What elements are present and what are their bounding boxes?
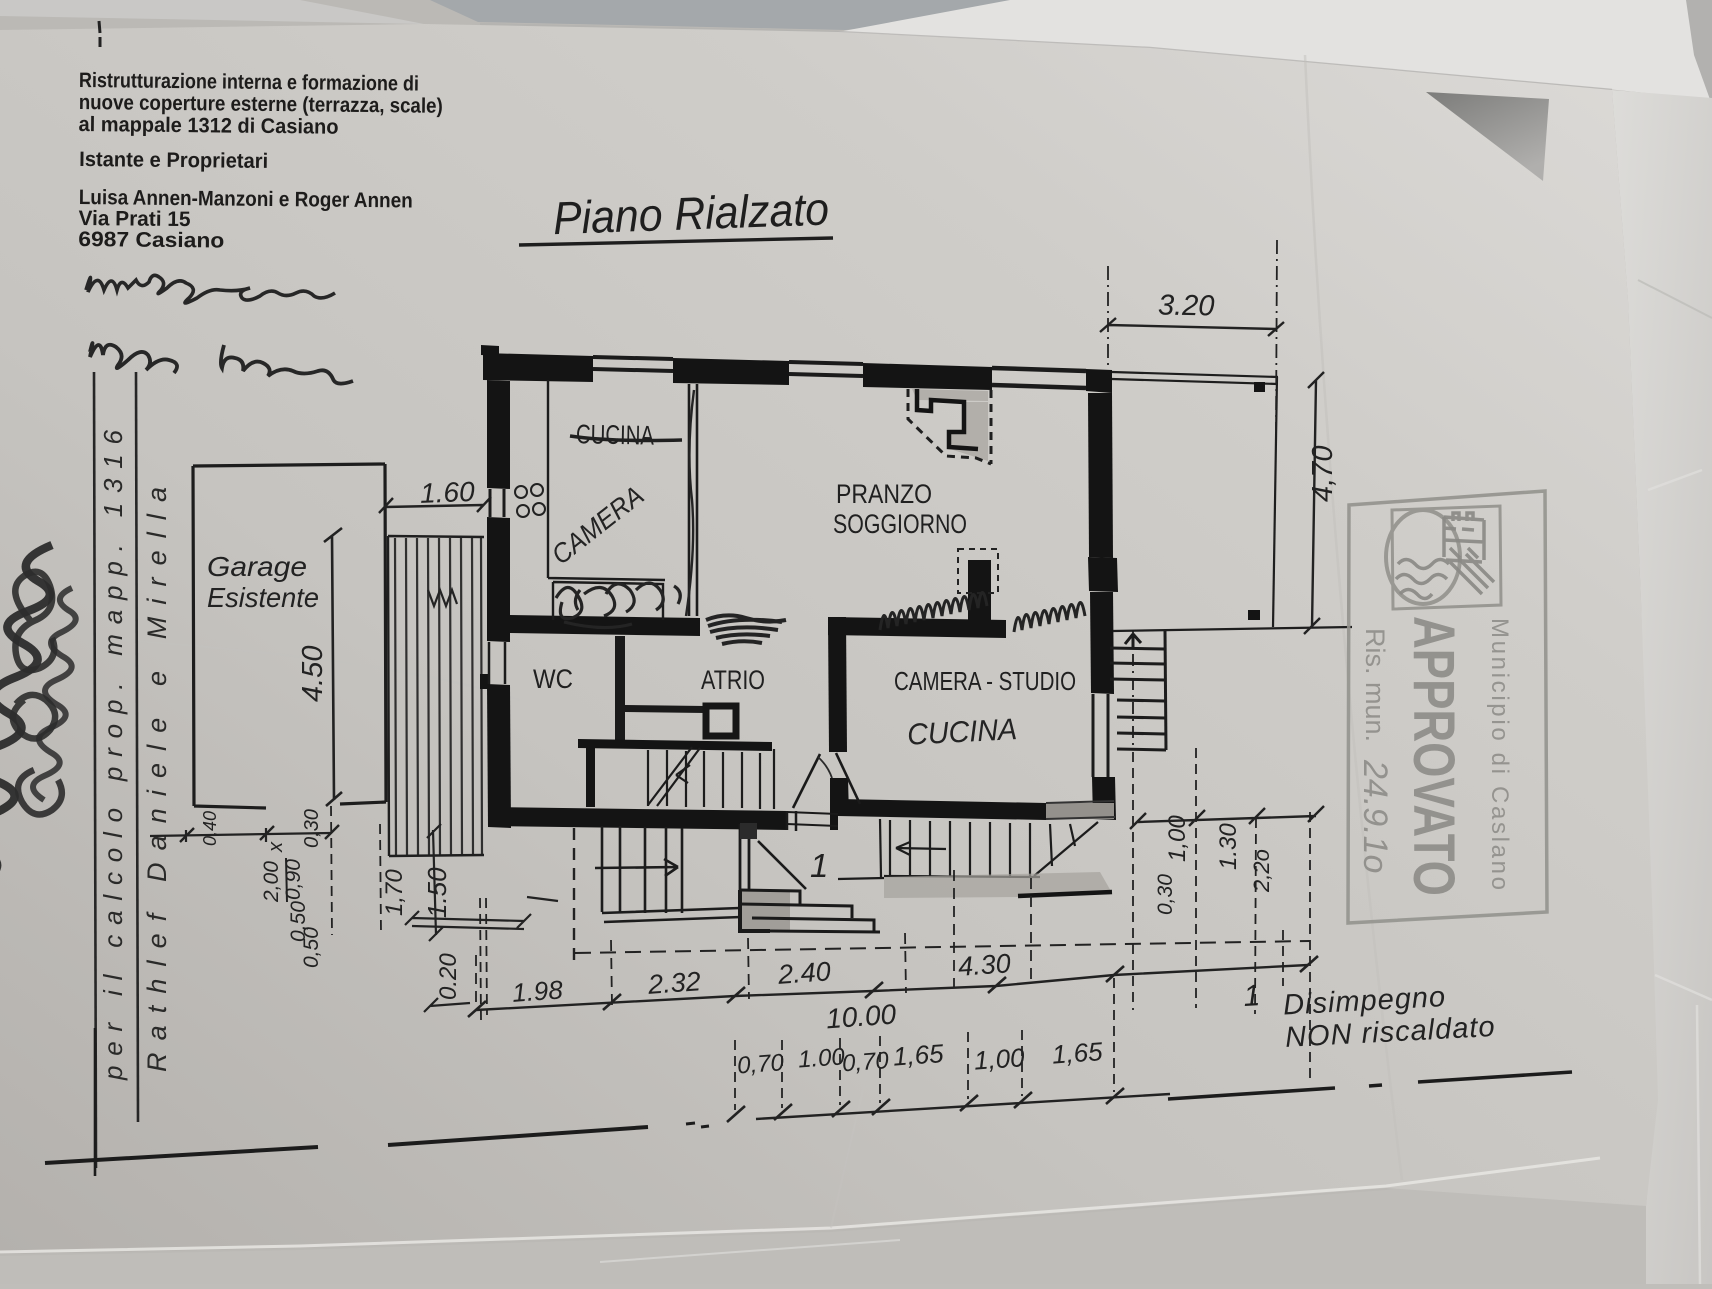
svg-text:0.20: 0.20 <box>435 953 462 1000</box>
svg-text:3.20: 3.20 <box>1158 289 1215 322</box>
svg-text:SOGGIORNO: SOGGIORNO <box>833 509 967 539</box>
svg-text:1: 1 <box>1243 979 1261 1013</box>
svg-text:2.32: 2.32 <box>646 966 702 1000</box>
svg-text:2.40: 2.40 <box>776 956 832 990</box>
svg-text:1,00: 1,00 <box>1164 815 1191 862</box>
svg-text:6987 Casiano: 6987 Casiano <box>78 228 224 253</box>
svg-text:1.98: 1.98 <box>511 974 564 1007</box>
svg-text:1.60: 1.60 <box>420 476 476 509</box>
svg-text:4.50: 4.50 <box>297 646 329 702</box>
svg-text:4,70: 4,70 <box>1307 446 1339 502</box>
svg-text:1,65: 1,65 <box>892 1038 945 1071</box>
svg-text:10.00: 10.00 <box>825 998 897 1034</box>
svg-text:1.30: 1.30 <box>1215 823 1242 870</box>
svg-text:CUCINA: CUCINA <box>576 419 655 450</box>
svg-text:0,70: 0,70 <box>736 1049 785 1079</box>
svg-text:al mappale 1312 di Casiano: al mappale 1312 di Casiano <box>78 113 338 139</box>
svg-text:24.9.1o: 24.9.1o <box>1356 759 1394 873</box>
svg-text:Ris. mun.: Ris. mun. <box>1360 628 1390 742</box>
svg-text:1.00: 1.00 <box>797 1043 846 1073</box>
svg-text:0,30: 0,30 <box>1154 874 1177 915</box>
svg-text:Garage: Garage <box>207 551 307 582</box>
svg-text:ATRIO: ATRIO <box>701 665 765 695</box>
svg-text:WC: WC <box>533 664 573 694</box>
svg-text:1.50: 1.50 <box>422 867 452 918</box>
svg-text:0,30: 0,30 <box>301 809 323 848</box>
svg-text:Piano Rialzato: Piano Rialzato <box>552 182 830 244</box>
svg-text:1,00: 1,00 <box>973 1042 1026 1075</box>
svg-text:CUCINA: CUCINA <box>906 713 1018 752</box>
svg-text:0,40: 0,40 <box>200 811 220 846</box>
svg-text:1: 1 <box>810 847 828 884</box>
svg-text:x: x <box>265 841 287 853</box>
svg-text:CAMERA - STUDIO: CAMERA - STUDIO <box>894 666 1076 696</box>
svg-text:4.30: 4.30 <box>957 948 1012 982</box>
svg-text:APPROVATO: APPROVATO <box>1401 616 1466 896</box>
svg-text:1,70: 1,70 <box>381 869 408 916</box>
svg-text:Istante e Proprietari: Istante e Proprietari <box>79 148 268 173</box>
svg-text:Esistente: Esistente <box>207 582 319 613</box>
svg-text:2,00: 2,00 <box>260 861 283 903</box>
svg-text:PRANZO: PRANZO <box>836 479 932 509</box>
svg-text:0,70: 0,70 <box>841 1047 890 1077</box>
svg-text:0,50: 0,50 <box>300 927 323 968</box>
svg-text:2,2o: 2,2o <box>1249 849 1274 893</box>
svg-text:1,65: 1,65 <box>1051 1036 1104 1069</box>
svg-text:Municipio di Caslano: Municipio di Caslano <box>1486 618 1513 890</box>
